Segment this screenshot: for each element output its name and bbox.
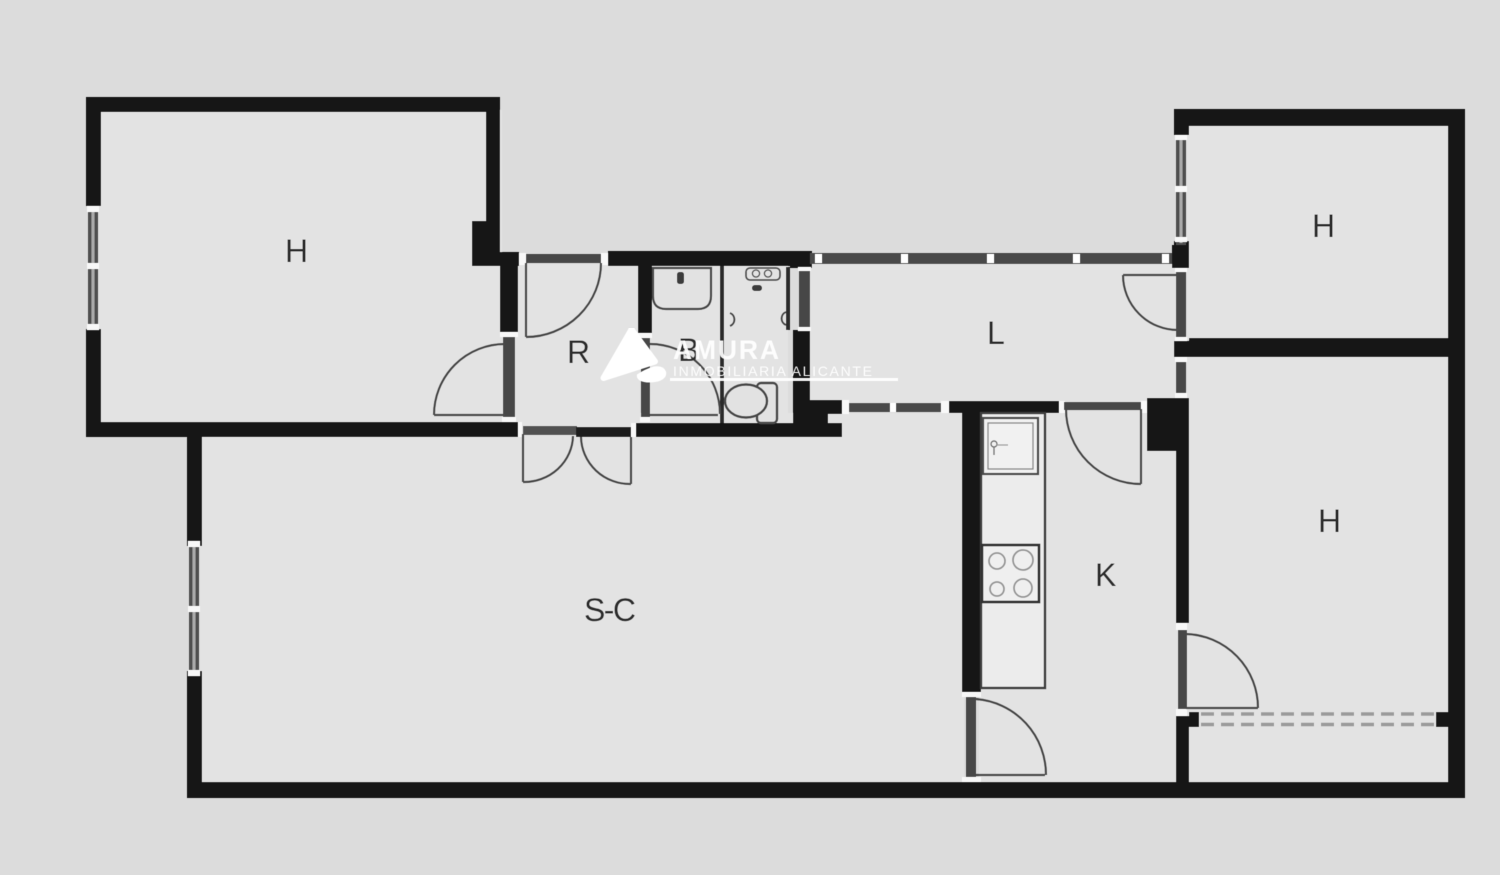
svg-text:K: K: [1095, 557, 1116, 593]
svg-text:H: H: [1312, 208, 1335, 244]
svg-text:AMURA: AMURA: [673, 335, 779, 365]
svg-text:INMOBILIARIA ALICANTE: INMOBILIARIA ALICANTE: [673, 363, 872, 379]
svg-text:H: H: [285, 233, 308, 269]
svg-text:L: L: [987, 315, 1005, 351]
svg-text:H: H: [1318, 503, 1341, 539]
svg-text:R: R: [567, 334, 590, 370]
svg-text:S-C: S-C: [584, 592, 636, 628]
